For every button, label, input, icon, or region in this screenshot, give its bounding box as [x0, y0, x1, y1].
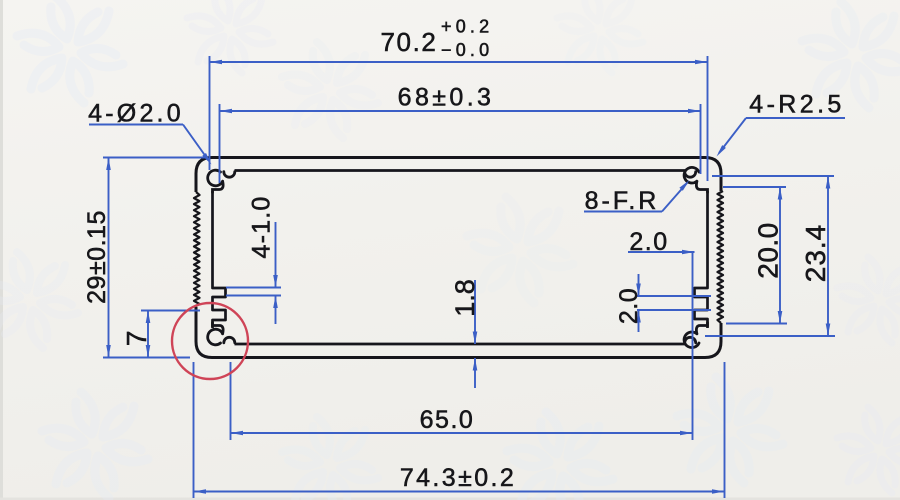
svg-text:74.3±0.2: 74.3±0.2 — [400, 464, 516, 492]
svg-text:4-R2.5: 4-R2.5 — [749, 91, 844, 119]
svg-text:4-1.0: 4-1.0 — [248, 196, 276, 259]
svg-text:29±0.15: 29±0.15 — [83, 210, 111, 304]
svg-text:70.2: 70.2 — [380, 27, 437, 57]
svg-text:4-Ø2.0: 4-Ø2.0 — [88, 100, 184, 128]
svg-text:−0.0: −0.0 — [441, 40, 493, 60]
svg-text:1.8: 1.8 — [450, 279, 480, 317]
svg-text:+0.2: +0.2 — [441, 17, 493, 37]
svg-text:2.0: 2.0 — [629, 228, 668, 256]
svg-text:68±0.3: 68±0.3 — [398, 84, 495, 112]
svg-text:65.0: 65.0 — [420, 406, 475, 434]
svg-text:23.4: 23.4 — [800, 224, 831, 283]
svg-text:20.0: 20.0 — [753, 222, 784, 279]
svg-text:7: 7 — [121, 329, 152, 346]
svg-text:2.0: 2.0 — [615, 288, 643, 324]
svg-text:8-F.R: 8-F.R — [585, 187, 660, 215]
